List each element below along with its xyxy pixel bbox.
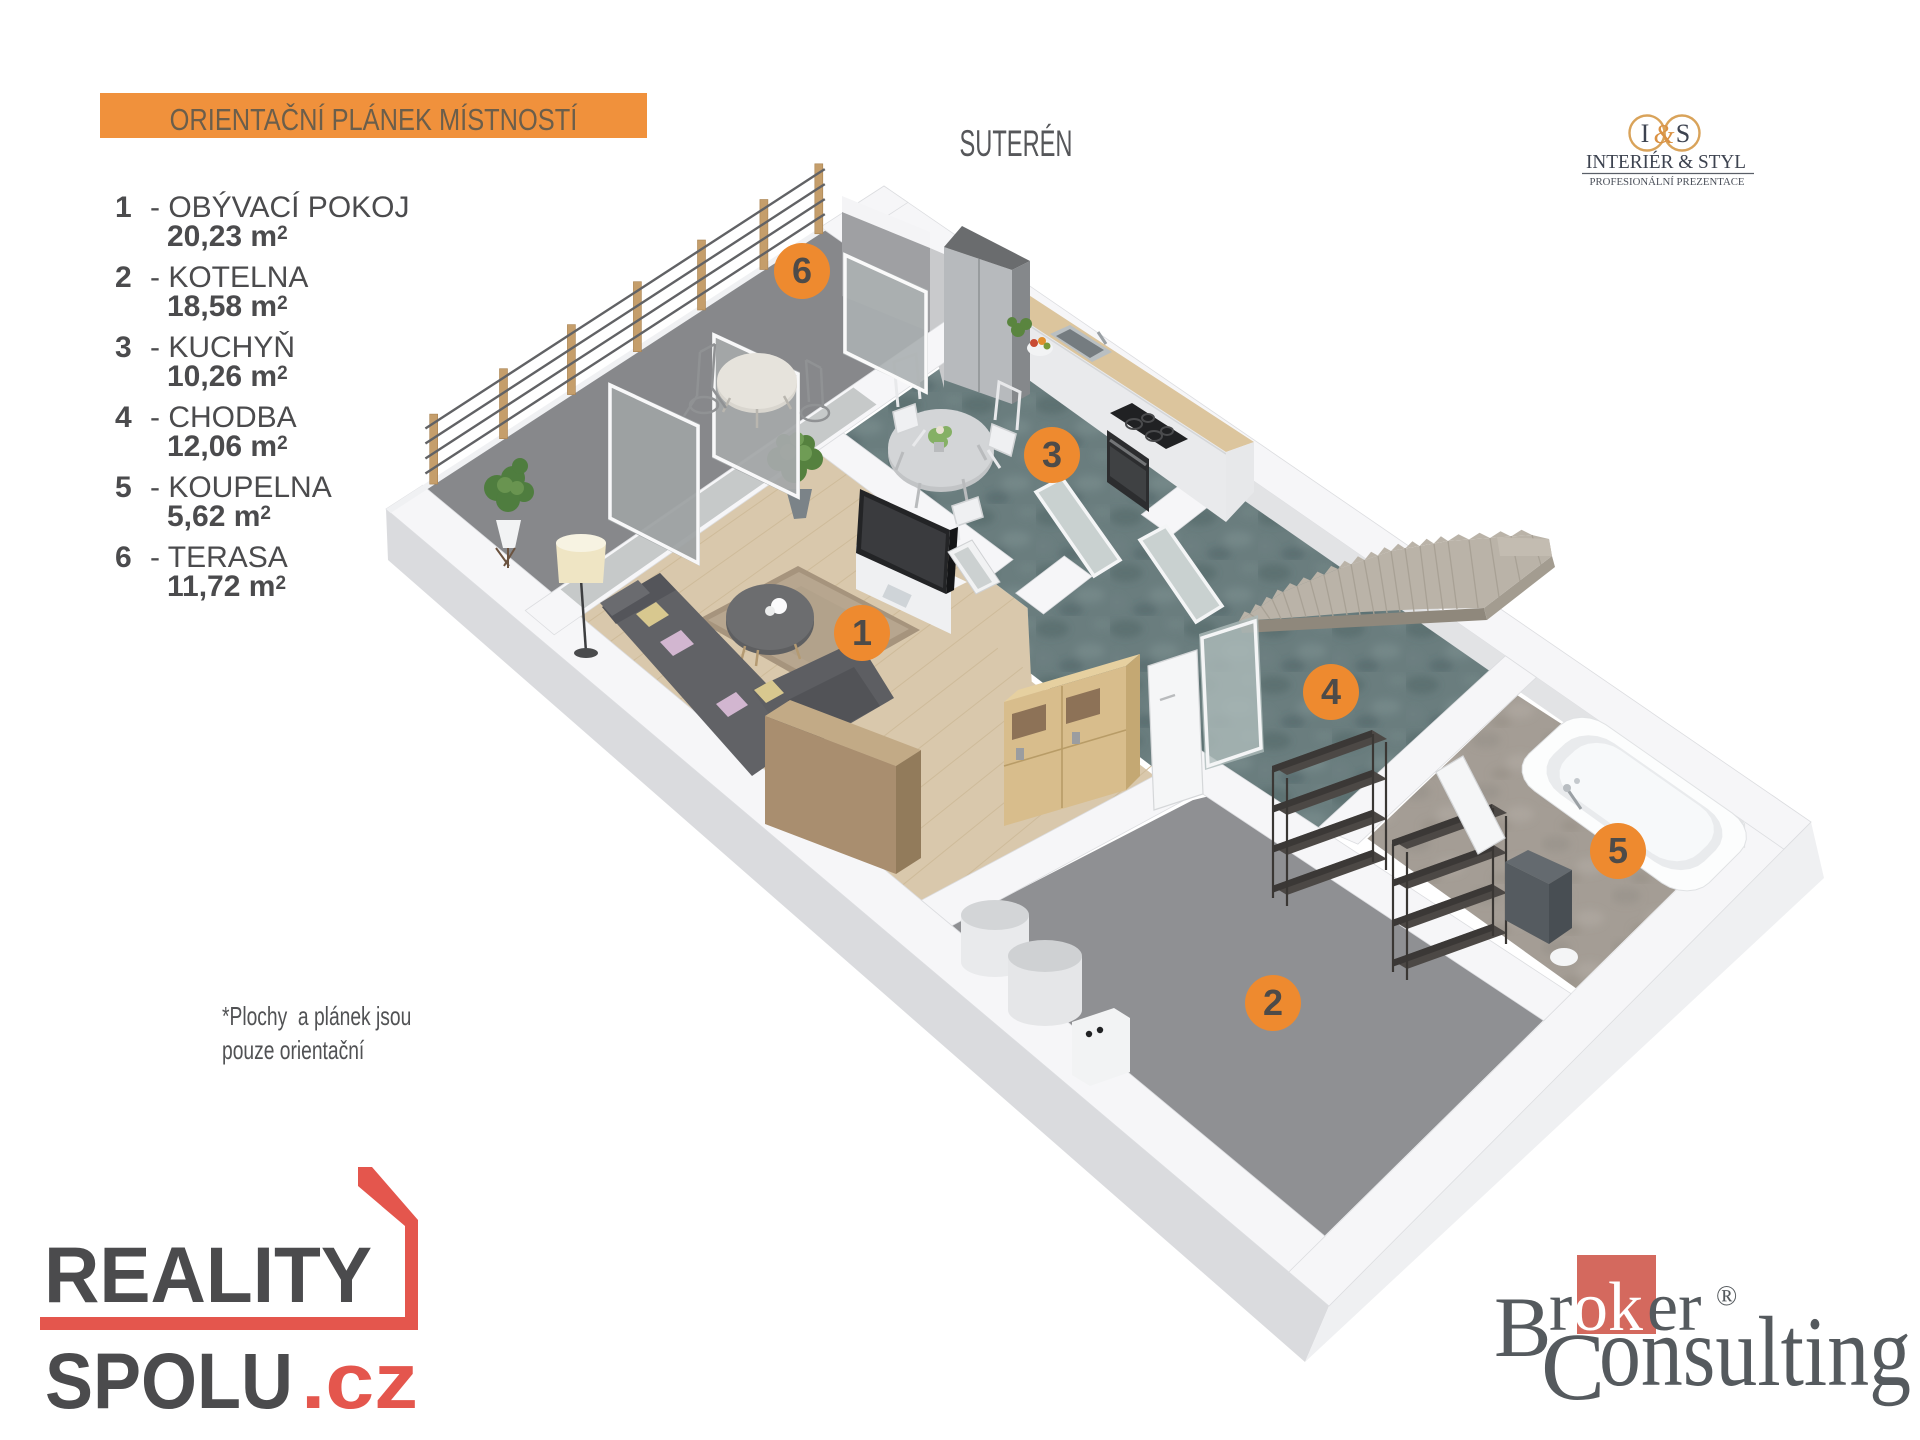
svg-text:S: S — [1676, 119, 1690, 148]
svg-text:SUTERÉN: SUTERÉN — [960, 123, 1073, 164]
svg-text:1: 1 — [852, 612, 872, 653]
svg-text:3: 3 — [1042, 434, 1062, 475]
svg-text:5: 5 — [1608, 830, 1628, 871]
svg-text:onsulting: onsulting — [1599, 1296, 1911, 1407]
svg-text:INTERIÉR & STYL: INTERIÉR & STYL — [1586, 150, 1746, 173]
svg-text:&: & — [1653, 119, 1674, 149]
svg-text:2: 2 — [1263, 982, 1283, 1023]
svg-text:REALITY: REALITY — [44, 1230, 372, 1319]
svg-text:4: 4 — [1321, 671, 1341, 712]
svg-text:.cz: .cz — [301, 1336, 418, 1425]
svg-text:C: C — [1541, 1313, 1605, 1420]
svg-text:PROFESIONÁLNÍ PREZENTACE: PROFESIONÁLNÍ PREZENTACE — [1590, 176, 1745, 188]
svg-text:I: I — [1641, 119, 1650, 148]
svg-text:6: 6 — [792, 250, 812, 291]
svg-text:SPOLU: SPOLU — [45, 1336, 293, 1425]
